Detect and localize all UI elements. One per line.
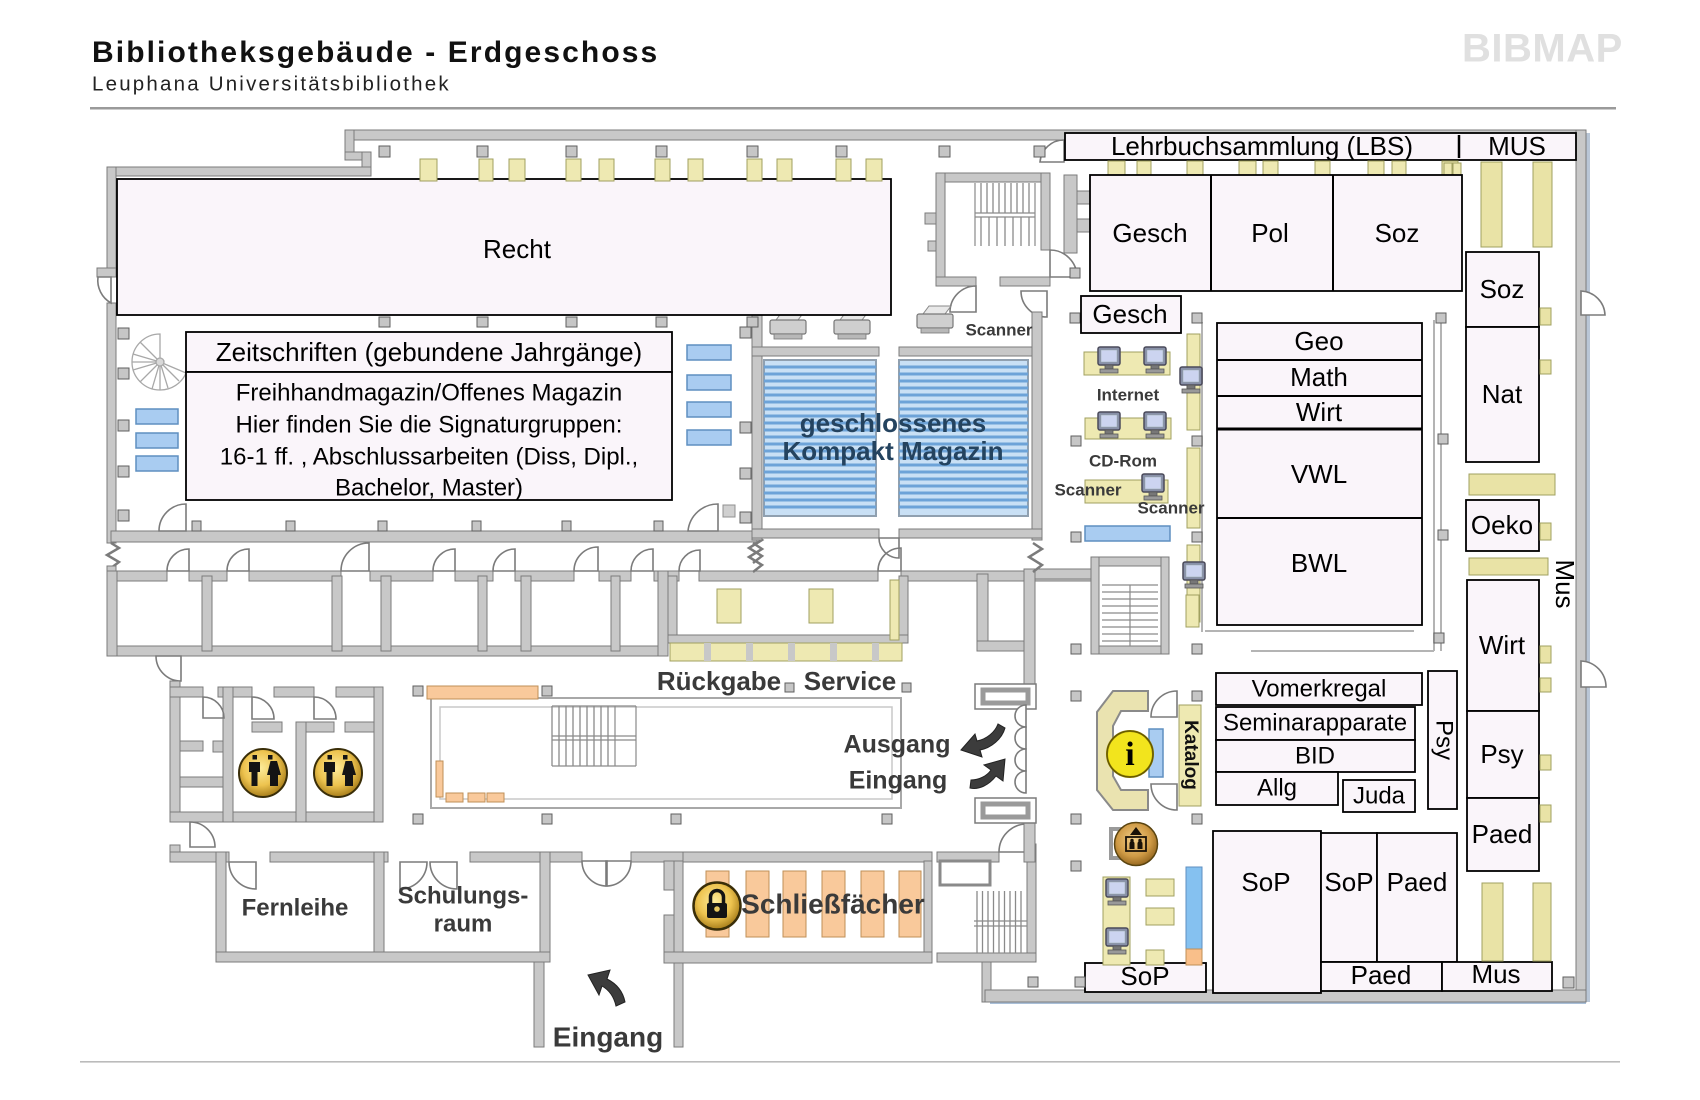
- svg-text:Ausgang: Ausgang: [844, 731, 951, 759]
- svg-text:Scanner: Scanner: [1054, 480, 1121, 499]
- svg-text:Hier finden Sie die Signaturgr: Hier finden Sie die Signaturgruppen:: [236, 411, 623, 438]
- svg-text:Rückgabe: Rückgabe: [657, 666, 781, 696]
- svg-text:Math: Math: [1290, 362, 1348, 392]
- svg-text:SoP: SoP: [1241, 867, 1290, 897]
- svg-text:BWL: BWL: [1291, 548, 1347, 578]
- svg-text:Oeko: Oeko: [1471, 510, 1533, 540]
- svg-text:Nat: Nat: [1482, 379, 1523, 409]
- svg-text:BIBMAP: BIBMAP: [1462, 27, 1623, 71]
- svg-text:Paed: Paed: [1472, 819, 1533, 849]
- svg-text:raum: raum: [434, 910, 493, 937]
- svg-text:Soz: Soz: [1375, 218, 1420, 248]
- svg-text:Bibliotheksgebäude - Erdgescho: Bibliotheksgebäude - Erdgeschoss: [92, 36, 659, 69]
- svg-text:Seminarapparate: Seminarapparate: [1223, 709, 1407, 736]
- svg-text:Gesch: Gesch: [1112, 218, 1187, 248]
- svg-text:Kompakt Magazin: Kompakt Magazin: [782, 436, 1003, 466]
- svg-text:Schulungs-: Schulungs-: [398, 882, 529, 909]
- svg-text:SoP: SoP: [1324, 867, 1373, 897]
- svg-text:geschlossenes: geschlossenes: [800, 408, 986, 438]
- svg-text:16-1 ff. , Abschlussarbeiten (: 16-1 ff. , Abschlussarbeiten (Diss, Dipl…: [220, 443, 638, 470]
- svg-text:Freihhandmagazin/Offenes Magaz: Freihhandmagazin/Offenes Magazin: [236, 379, 622, 406]
- svg-text:Geo: Geo: [1294, 326, 1343, 356]
- svg-text:Psy: Psy: [1480, 739, 1523, 769]
- svg-text:Pol: Pol: [1251, 218, 1289, 248]
- svg-text:i: i: [1125, 736, 1134, 773]
- svg-text:Mus: Mus: [1550, 559, 1580, 608]
- svg-text:Eingang: Eingang: [849, 767, 948, 795]
- svg-text:Mus: Mus: [1471, 959, 1520, 989]
- svg-text:BID: BID: [1295, 742, 1335, 769]
- svg-text:Scanner: Scanner: [965, 320, 1032, 339]
- svg-text:Eingang: Eingang: [553, 1021, 663, 1052]
- svg-text:Psy: Psy: [1431, 720, 1458, 760]
- svg-text:Service: Service: [804, 666, 897, 696]
- svg-text:Zeitschriften (gebundene Jahrg: Zeitschriften (gebundene Jahrgänge): [216, 337, 642, 367]
- svg-text:Gesch: Gesch: [1092, 299, 1167, 329]
- svg-text:MUS: MUS: [1488, 131, 1546, 161]
- svg-text:Bachelor, Master): Bachelor, Master): [335, 474, 523, 501]
- svg-text:Schließfächer: Schließfächer: [741, 888, 925, 919]
- svg-text:Fernleihe: Fernleihe: [242, 894, 349, 921]
- svg-text:Scanner: Scanner: [1137, 498, 1204, 517]
- svg-text:Paed: Paed: [1351, 960, 1412, 990]
- svg-text:VWL: VWL: [1291, 459, 1347, 489]
- svg-text:Wirt: Wirt: [1479, 630, 1526, 660]
- svg-text:Katalog: Katalog: [1180, 720, 1201, 790]
- svg-text:Vomerkregal: Vomerkregal: [1252, 675, 1387, 702]
- svg-text:Soz: Soz: [1480, 274, 1525, 304]
- svg-text:Wirt: Wirt: [1296, 397, 1343, 427]
- svg-text:Juda: Juda: [1353, 782, 1406, 809]
- svg-text:Recht: Recht: [483, 234, 552, 264]
- svg-text:Allg: Allg: [1257, 774, 1297, 801]
- svg-text:Leuphana Universitätsbibliothe: Leuphana Universitätsbibliothek: [92, 72, 451, 95]
- svg-text:CD-Rom: CD-Rom: [1089, 451, 1157, 470]
- svg-text:Internet: Internet: [1097, 385, 1160, 404]
- svg-text:Lehrbuchsammlung (LBS): Lehrbuchsammlung (LBS): [1111, 131, 1413, 161]
- svg-text:Paed: Paed: [1387, 867, 1448, 897]
